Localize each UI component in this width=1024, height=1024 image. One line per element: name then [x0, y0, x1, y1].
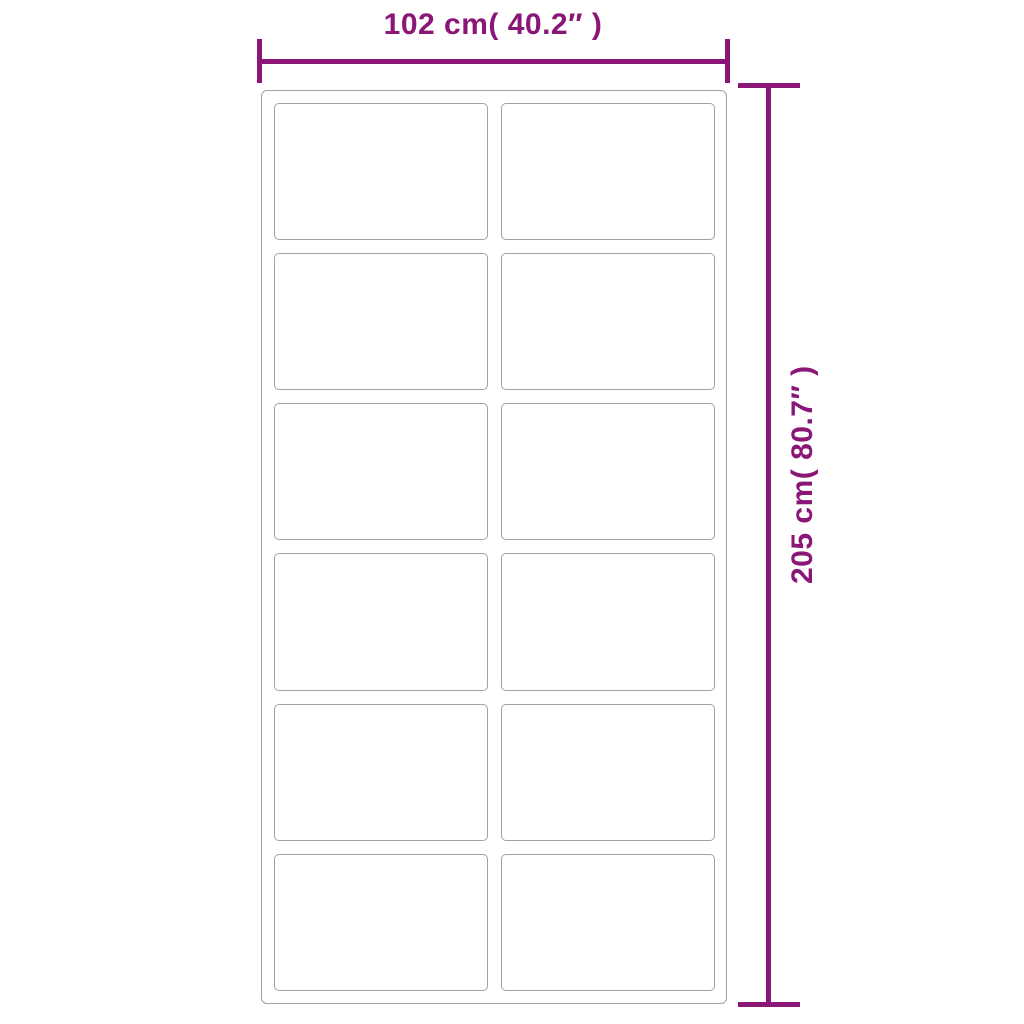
- width-dimension-left-cap: [257, 39, 262, 83]
- door-panel: [501, 103, 715, 240]
- height-dimension-line: [766, 85, 771, 1007]
- door-panel: [274, 854, 488, 991]
- door-panel: [501, 553, 715, 690]
- door-frame: [261, 90, 727, 1004]
- height-dimension-bottom-cap: [738, 1002, 800, 1007]
- door-panel: [501, 704, 715, 841]
- door-panel: [274, 103, 488, 240]
- door-panel: [501, 854, 715, 991]
- door-panel: [501, 403, 715, 540]
- door-panel: [274, 553, 488, 690]
- door-panel: [274, 253, 488, 390]
- width-dimension-line: [259, 59, 727, 64]
- height-dimension-top-cap: [738, 83, 800, 88]
- door-panel: [501, 253, 715, 390]
- height-dimension-label: 205 cm( 80.7″ ): [786, 365, 820, 584]
- door-panel: [274, 704, 488, 841]
- product-dimension-diagram: 102 cm( 40.2″ ) 205 cm( 80.7″ ): [0, 0, 1024, 1024]
- width-dimension-label: 102 cm( 40.2″ ): [259, 8, 727, 42]
- door-panel: [274, 403, 488, 540]
- width-dimension-right-cap: [725, 39, 730, 83]
